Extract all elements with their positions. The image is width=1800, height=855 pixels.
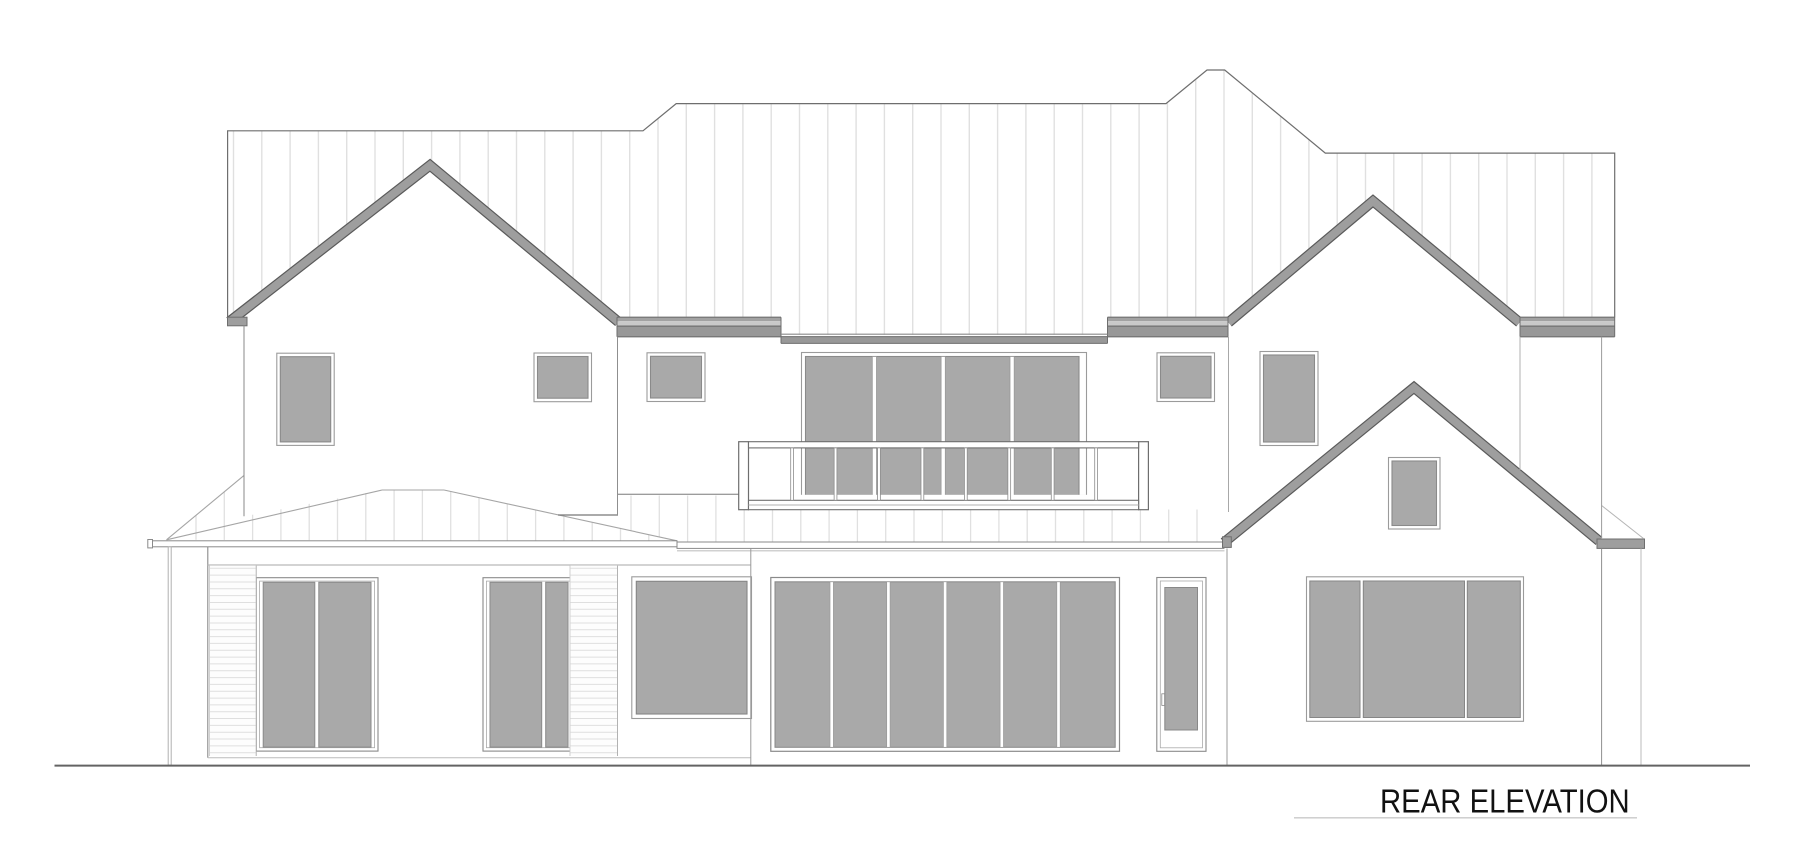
svg-text:REAR ELEVATION: REAR ELEVATION (1380, 783, 1630, 820)
